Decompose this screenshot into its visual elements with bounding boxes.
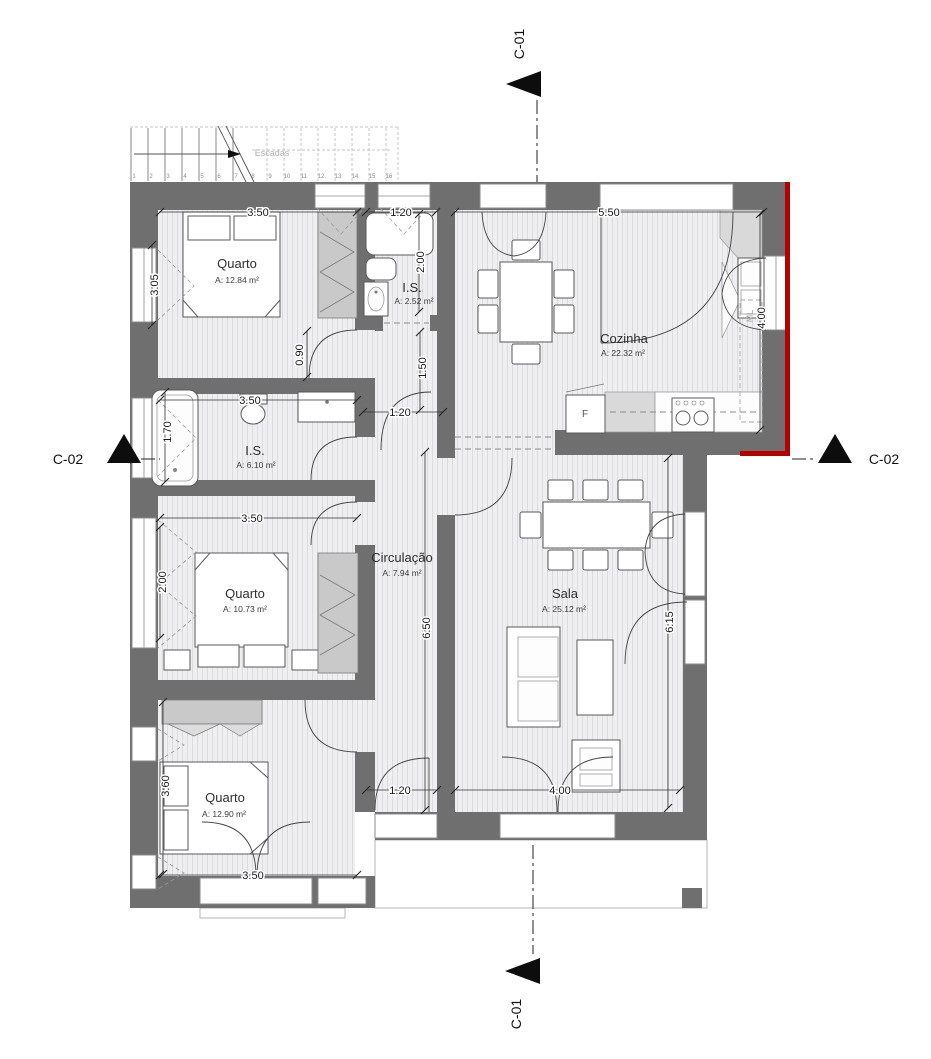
- dim-14: 6.15: [664, 611, 676, 632]
- stove: [672, 398, 714, 432]
- dim-5: 0.90: [294, 344, 306, 365]
- section-label-bottom: C-01: [508, 999, 524, 1030]
- dim-15: 3.60: [160, 775, 172, 796]
- stair-number: 7: [234, 174, 238, 180]
- room-area-sala: A: 25.12 m²: [542, 604, 586, 614]
- stair-number: 8: [251, 174, 255, 180]
- stair-numbers: 12345678910111213141516: [132, 174, 393, 180]
- stair-number: 2: [149, 174, 153, 180]
- section-label-right: C-02: [869, 451, 900, 467]
- bed-bedroom3: [160, 762, 268, 854]
- room-area-bedroom2: A: 10.73 m²: [223, 604, 267, 614]
- red-line-vertical: [785, 182, 790, 455]
- washer-label: ML: [745, 310, 755, 323]
- tv-bench: [577, 640, 613, 715]
- sofa: [507, 627, 560, 727]
- entrance-door-gap: [375, 814, 437, 838]
- shower: [366, 213, 433, 255]
- dim-2: 5.50: [598, 207, 619, 219]
- room-area-circulation: A: 7.94 m²: [382, 568, 421, 578]
- room-name-bathroom: I.S.: [245, 443, 265, 458]
- stair-number: 3: [166, 174, 170, 180]
- dim-17: 4.00: [549, 785, 570, 797]
- entry-step: [200, 908, 345, 918]
- stairs-label: Escadas: [255, 148, 290, 158]
- room-area-bedroom1: A: 12.84 m²: [215, 275, 259, 285]
- dim-8: 4.00: [756, 307, 768, 328]
- stair-number: 4: [183, 174, 187, 180]
- door-sala-right: [685, 600, 705, 664]
- toilet-small-wc: [366, 258, 396, 280]
- dim-1: 1.20: [390, 207, 411, 219]
- dim-11: 3.50: [241, 513, 262, 525]
- stair-number: 1: [132, 174, 136, 180]
- tv-cabinet: [572, 740, 620, 792]
- section-arrow-top: [506, 71, 541, 97]
- room-name-circulation: Circulação: [371, 550, 432, 565]
- stair-number: 11: [301, 174, 308, 180]
- sink-small-wc: [364, 282, 388, 316]
- dim-12: 2.00: [157, 571, 169, 592]
- vanity-bathroom: [298, 392, 355, 422]
- stair-number: 5: [200, 174, 204, 180]
- floor-plan-canvas: 12345678910111213141516 Escadas Quarto A…: [0, 0, 931, 1059]
- room-name-bedroom2: Quarto: [225, 586, 265, 601]
- red-line-horizontal: [740, 451, 790, 456]
- section-arrow-right: [818, 434, 852, 463]
- window-sala-right: [685, 512, 705, 596]
- dim-18: 3.50: [242, 870, 263, 882]
- dim-10: 1.70: [162, 421, 174, 442]
- wardrobe-bedroom1: [318, 212, 357, 318]
- dim-4: 2.00: [415, 251, 427, 272]
- room-name-bedroom1: Quarto: [217, 256, 257, 271]
- dim-6: 1.50: [417, 357, 429, 378]
- room-area-bathroom: A: 6.10 m²: [236, 460, 275, 470]
- room-name-sala: Sala: [552, 586, 579, 601]
- stairs: 12345678910111213141516 Escadas: [130, 126, 398, 182]
- french-door-sala: [500, 814, 615, 838]
- window-bedroom3-b: [132, 855, 156, 889]
- section-label-left: C-02: [53, 451, 84, 467]
- room-area-kitchen: A: 22.32 m²: [601, 348, 645, 358]
- room-area-bedroom3: A: 12.90 m²: [202, 809, 246, 819]
- stair-number: 13: [335, 174, 342, 180]
- stair-number: 9: [268, 174, 272, 180]
- wardrobe-bedroom2: [318, 553, 358, 673]
- stair-number: 10: [284, 174, 291, 180]
- window-bedroom3-bottom: [318, 878, 366, 904]
- exterior-column: [682, 888, 702, 908]
- room-name-kitchen: Cozinha: [600, 331, 648, 346]
- window-bedroom3-a: [132, 727, 156, 761]
- stair-number: 12: [318, 174, 325, 180]
- dim-13: 6.50: [421, 617, 433, 638]
- room-area-wc: A: 2.52 m²: [394, 296, 433, 306]
- section-label-top: C-01: [511, 29, 527, 60]
- window-kitchen-top: [480, 184, 546, 208]
- room-name-bedroom3: Quarto: [205, 790, 245, 805]
- stair-number: 15: [369, 174, 376, 180]
- dim-9: 3.50: [239, 395, 260, 407]
- stair-number: 16: [386, 174, 393, 180]
- bathtub: [152, 390, 198, 486]
- fridge-label: F: [582, 409, 588, 420]
- dim-7: 1.20: [389, 407, 410, 419]
- dim-16: 1.20: [389, 785, 410, 797]
- dim-0: 3.50: [247, 207, 268, 219]
- stair-number: 6: [217, 174, 221, 180]
- section-arrow-bottom: [505, 958, 540, 984]
- dim-3: 3.05: [149, 274, 161, 295]
- door-kitchen-top: [600, 184, 733, 210]
- stair-number: 14: [352, 174, 359, 180]
- floor-plan-drawing: 12345678910111213141516 Escadas Quarto A…: [0, 0, 931, 1059]
